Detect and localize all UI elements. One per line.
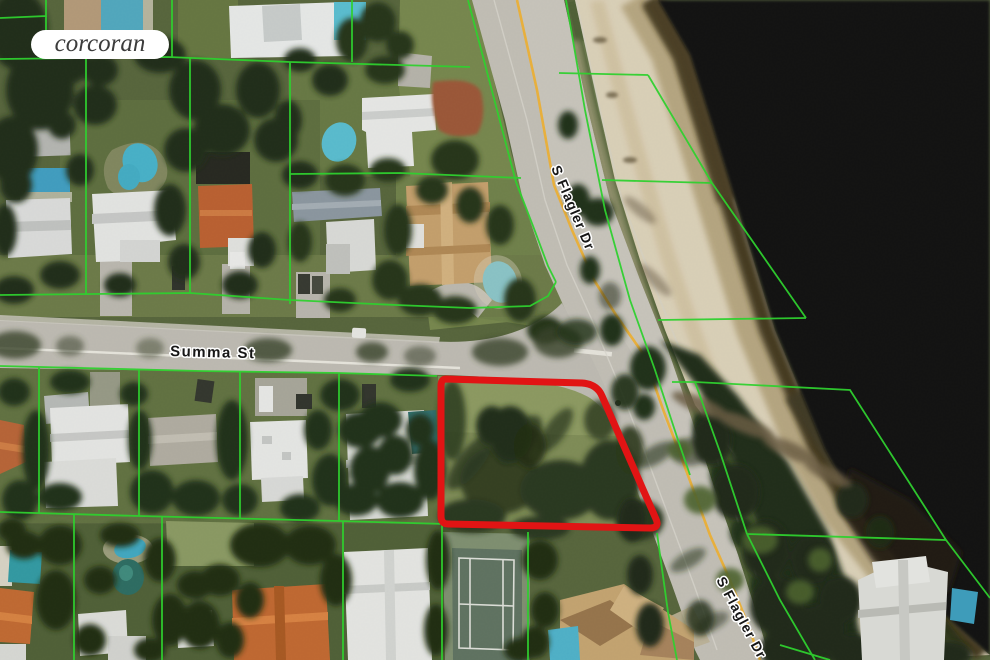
svg-text:corcoran: corcoran [55, 30, 146, 57]
svg-text:Summa St: Summa St [170, 343, 256, 362]
